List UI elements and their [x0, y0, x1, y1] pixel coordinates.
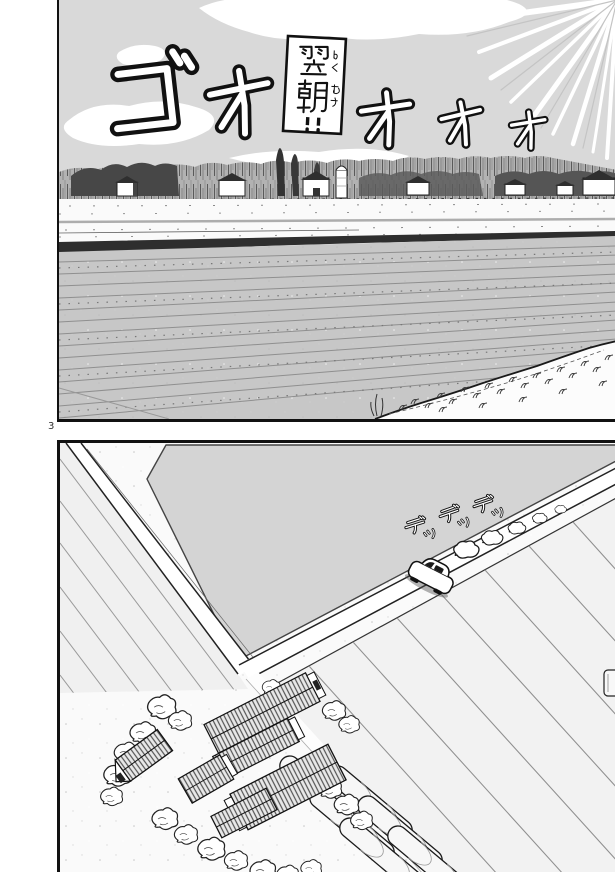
- silo: [336, 166, 347, 198]
- small-shed: [604, 670, 615, 696]
- panel-bottom-art: [60, 443, 615, 872]
- panel-bottom: [57, 440, 615, 872]
- caption-box: [283, 36, 346, 134]
- panel-top-art: [59, 0, 615, 419]
- manga-page: 3: [0, 0, 615, 872]
- panel-top: [57, 0, 615, 422]
- page-number: 3: [48, 421, 54, 432]
